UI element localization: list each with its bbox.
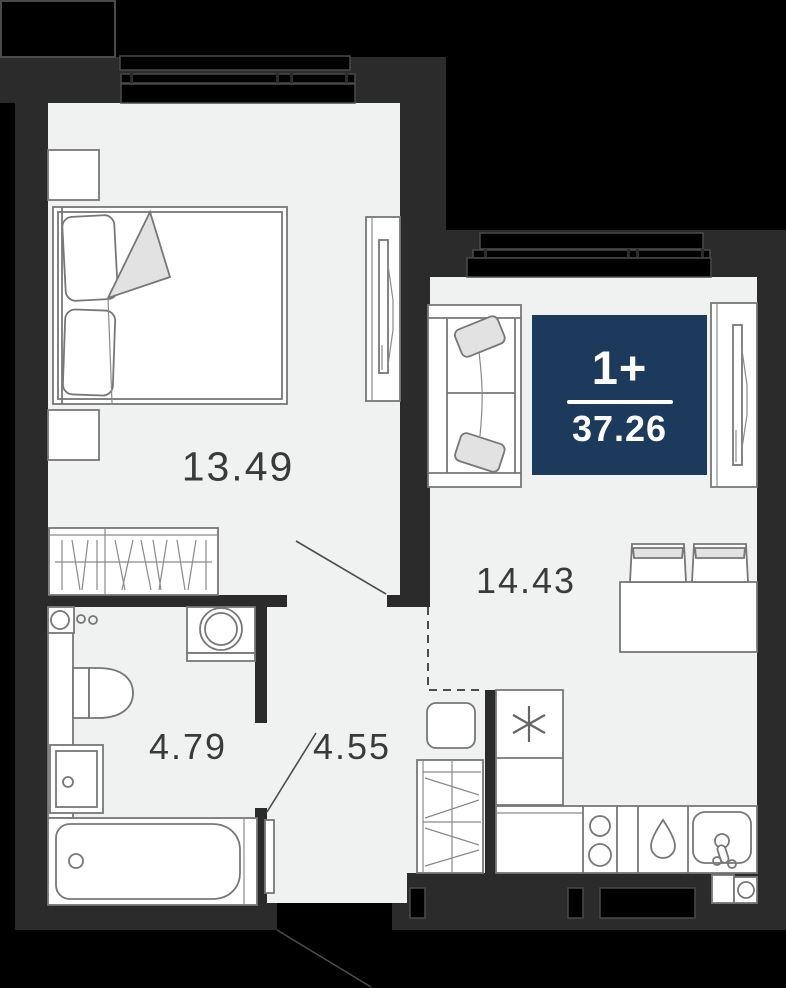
kitchen-tall-unit (496, 690, 563, 805)
wall-bedroom-bottom (15, 595, 287, 607)
bathroom-area-label: 4.79 (149, 726, 227, 768)
entrance-door-opening (277, 903, 392, 930)
window-outer-pane (120, 56, 350, 70)
apartment-floor-plan: 13.49 14.43 4.79 4.55 1+ 37.26 (0, 0, 786, 988)
double-bed (53, 207, 287, 404)
door-leaf (265, 820, 274, 893)
window-outer-pane (480, 233, 703, 249)
sash-gap (130, 73, 133, 84)
badge-divider (567, 400, 673, 404)
wall-bedroom-living-divider (400, 230, 430, 607)
control-panel (187, 653, 255, 661)
chair-back (695, 548, 745, 558)
dining-table (620, 582, 757, 652)
nightstand (48, 410, 99, 460)
wall-divider-upper (400, 57, 446, 230)
bedroom-window (120, 56, 355, 103)
window-inner-pane (121, 84, 355, 103)
kitchen-sink (693, 812, 751, 868)
sash-gap (290, 73, 293, 84)
bottom-wall-glazing-3 (600, 888, 695, 918)
washbasin-cabinet (50, 745, 103, 813)
wall-bottom-entrance-jamb (392, 903, 407, 930)
bottom-wall-glazing-2 (568, 888, 583, 918)
pillow (62, 215, 118, 302)
window-sash (473, 250, 710, 258)
nightstand (48, 150, 99, 200)
bottom-wall-glazing-1 (410, 888, 425, 918)
total-area-label: 37.26 (572, 411, 667, 447)
floor-plan-graphic (0, 0, 786, 988)
living-window (467, 233, 711, 277)
outside-left (0, 103, 15, 988)
apartment-type-badge: 1+ 37.26 (532, 315, 707, 475)
wall-kitchen-divider (485, 690, 496, 875)
window-sash (121, 74, 355, 83)
wall-right (757, 230, 786, 930)
chair-back (633, 548, 683, 558)
closet-living (711, 303, 757, 487)
outside-top (0, 0, 786, 57)
kitchen-counter (496, 806, 757, 873)
adjacent-unit-top-right (446, 57, 786, 230)
wall-bottom-left (15, 903, 277, 930)
bedroom-door-opening-floor (287, 595, 387, 607)
dining-chair (692, 544, 748, 582)
adjacent-block-top-left (1, 1, 115, 57)
outside-bottom (0, 930, 786, 988)
dining-chair (630, 544, 686, 582)
sofa (428, 305, 521, 487)
sash-gap (345, 73, 348, 84)
hallway-area-label: 4.55 (313, 726, 391, 768)
living-kitchen-area-label: 14.43 (476, 560, 576, 602)
bathtub (48, 818, 257, 905)
bedroom-area-label: 13.49 (182, 444, 295, 491)
pillow (63, 309, 116, 396)
sliding-door (379, 240, 388, 373)
bathroom-door-opening-floor (253, 723, 267, 808)
sliding-door (733, 325, 742, 465)
cistern (73, 668, 89, 718)
stool (427, 703, 475, 748)
toilet (73, 668, 133, 718)
window-inner-pane (467, 258, 711, 277)
wall-bathroom-right-upper (255, 607, 267, 723)
sash-gap (276, 73, 279, 84)
wall-vent-box (712, 875, 757, 903)
washing-machine (187, 607, 255, 661)
closet-bedroom (366, 217, 400, 401)
wardrobe-bedroom (49, 528, 218, 595)
wall-bedroom-bottom-foot (387, 595, 430, 607)
room-count-label: 1+ (592, 344, 648, 391)
wardrobe-hallway (417, 760, 483, 873)
wall-left (15, 103, 48, 930)
